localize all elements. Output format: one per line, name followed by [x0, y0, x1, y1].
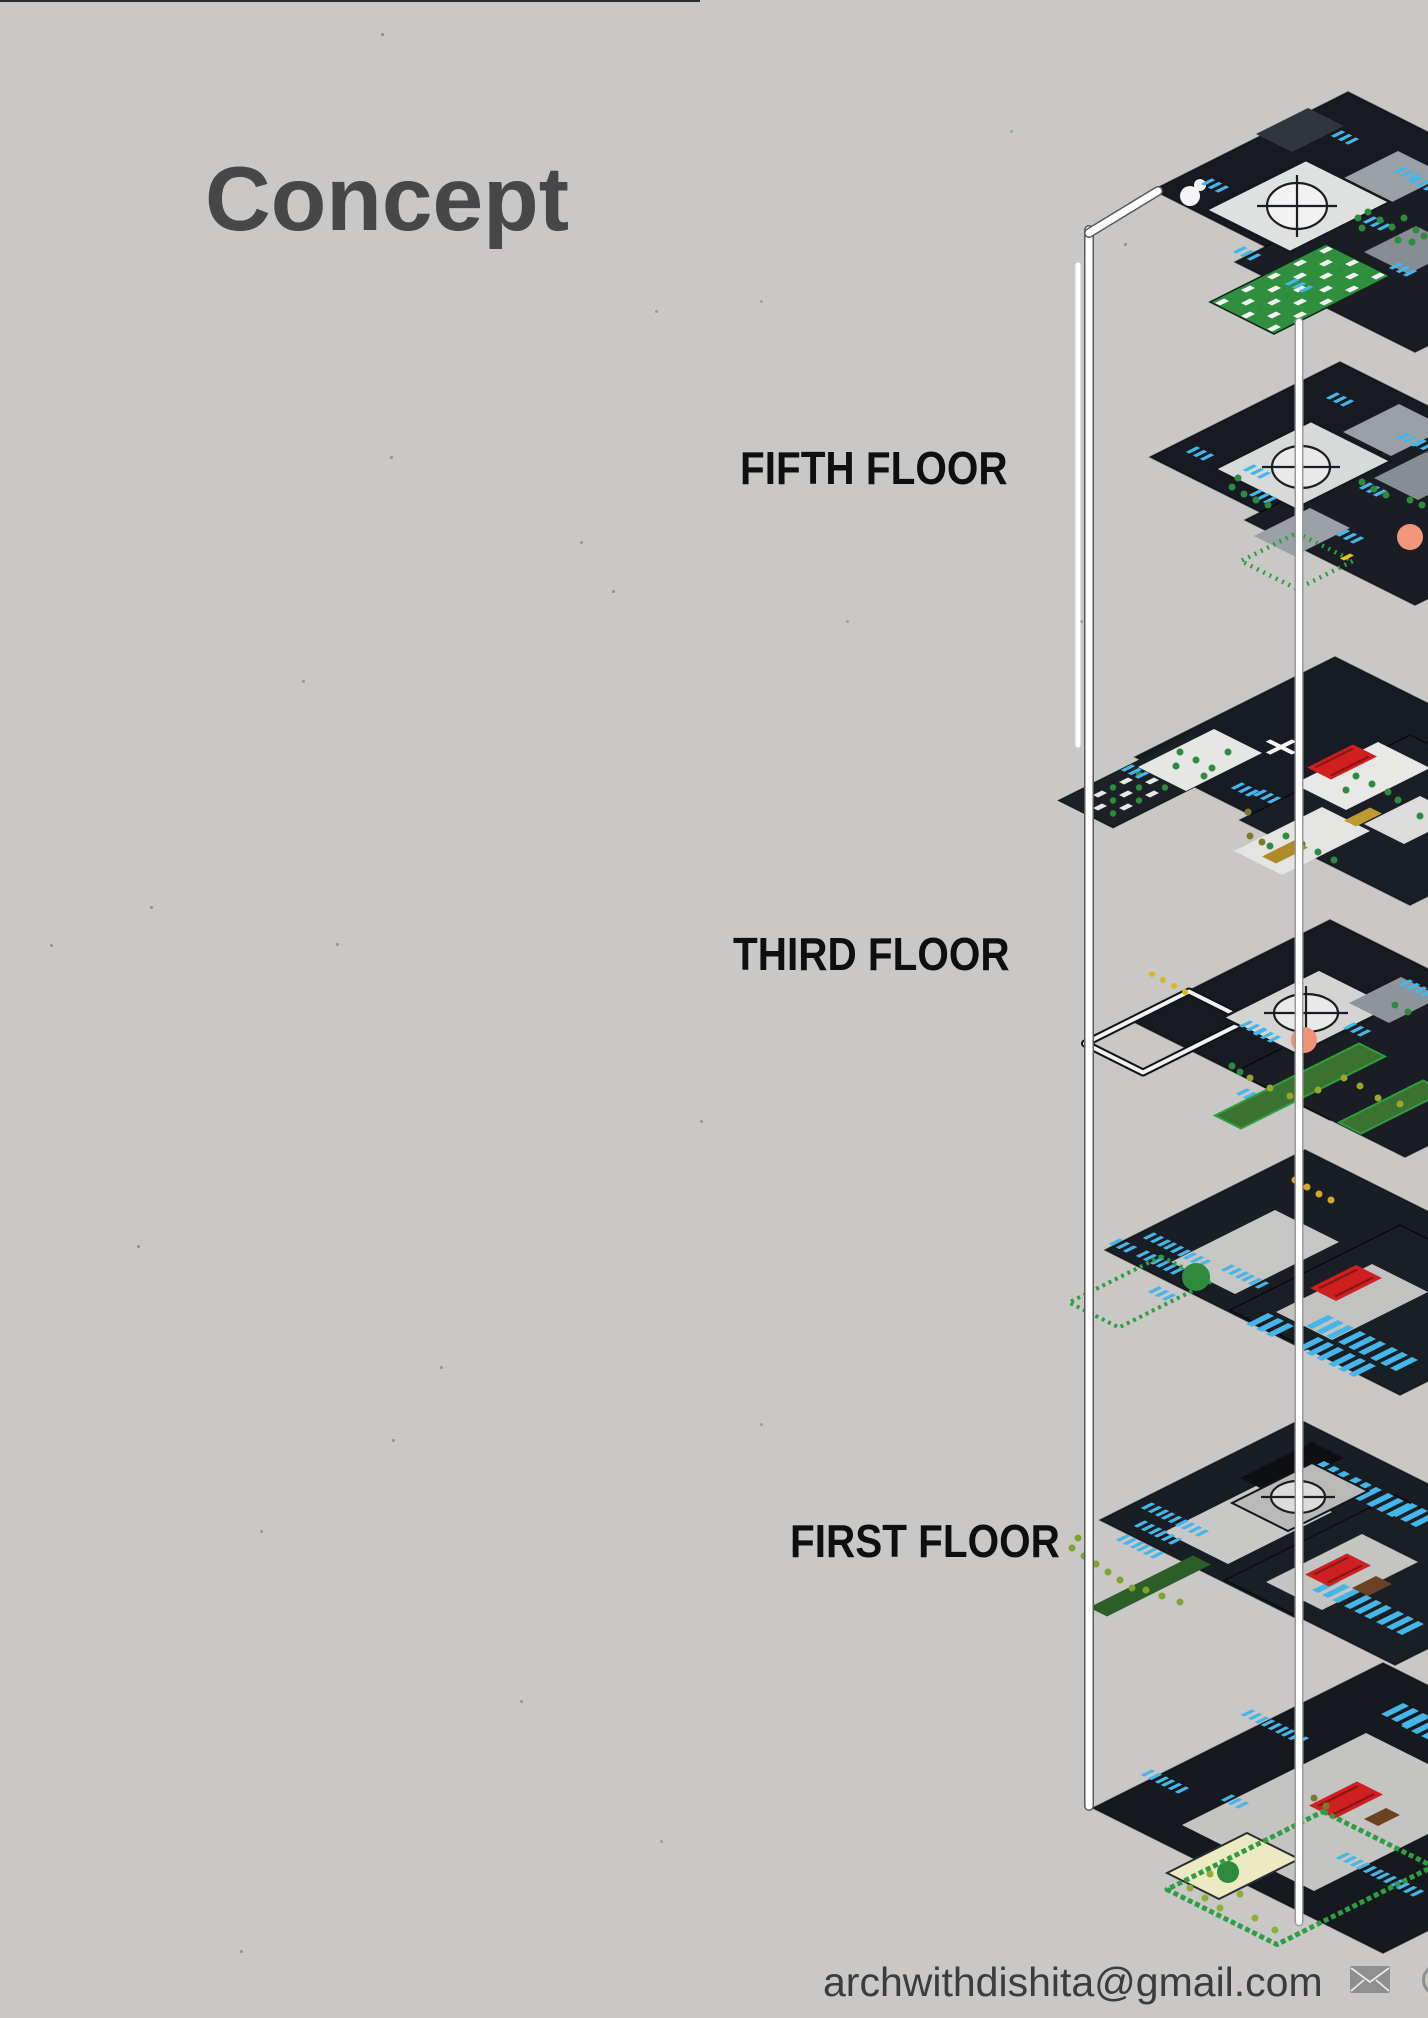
floor-label-first: FIRST FLOOR [790, 1514, 1060, 1568]
concept-slide: Concept FIFTH FLOOR THIRD FLOOR FIRST FL… [0, 0, 1428, 2018]
email-text: archwithdishita@gmail.com [823, 1959, 1323, 2006]
second-floor-plan [1069, 1150, 1428, 1395]
sixth-floor-plan [1153, 92, 1428, 352]
floor-label-fifth: FIFTH FLOOR [740, 441, 1008, 495]
fourth-floor-plan [1059, 657, 1428, 905]
core-line-left-connector [1089, 191, 1158, 233]
exploded-axonometric-floor-stack [0, 0, 1428, 2018]
fifth-floor-plan [1150, 362, 1428, 605]
first-floor-plan [1069, 1420, 1428, 1665]
ground-floor-plan [1093, 1663, 1428, 1953]
floor-label-third: THIRD FLOOR [733, 927, 1010, 981]
envelope-icon [1350, 1966, 1390, 1993]
third-floor-plan [1085, 920, 1428, 1157]
